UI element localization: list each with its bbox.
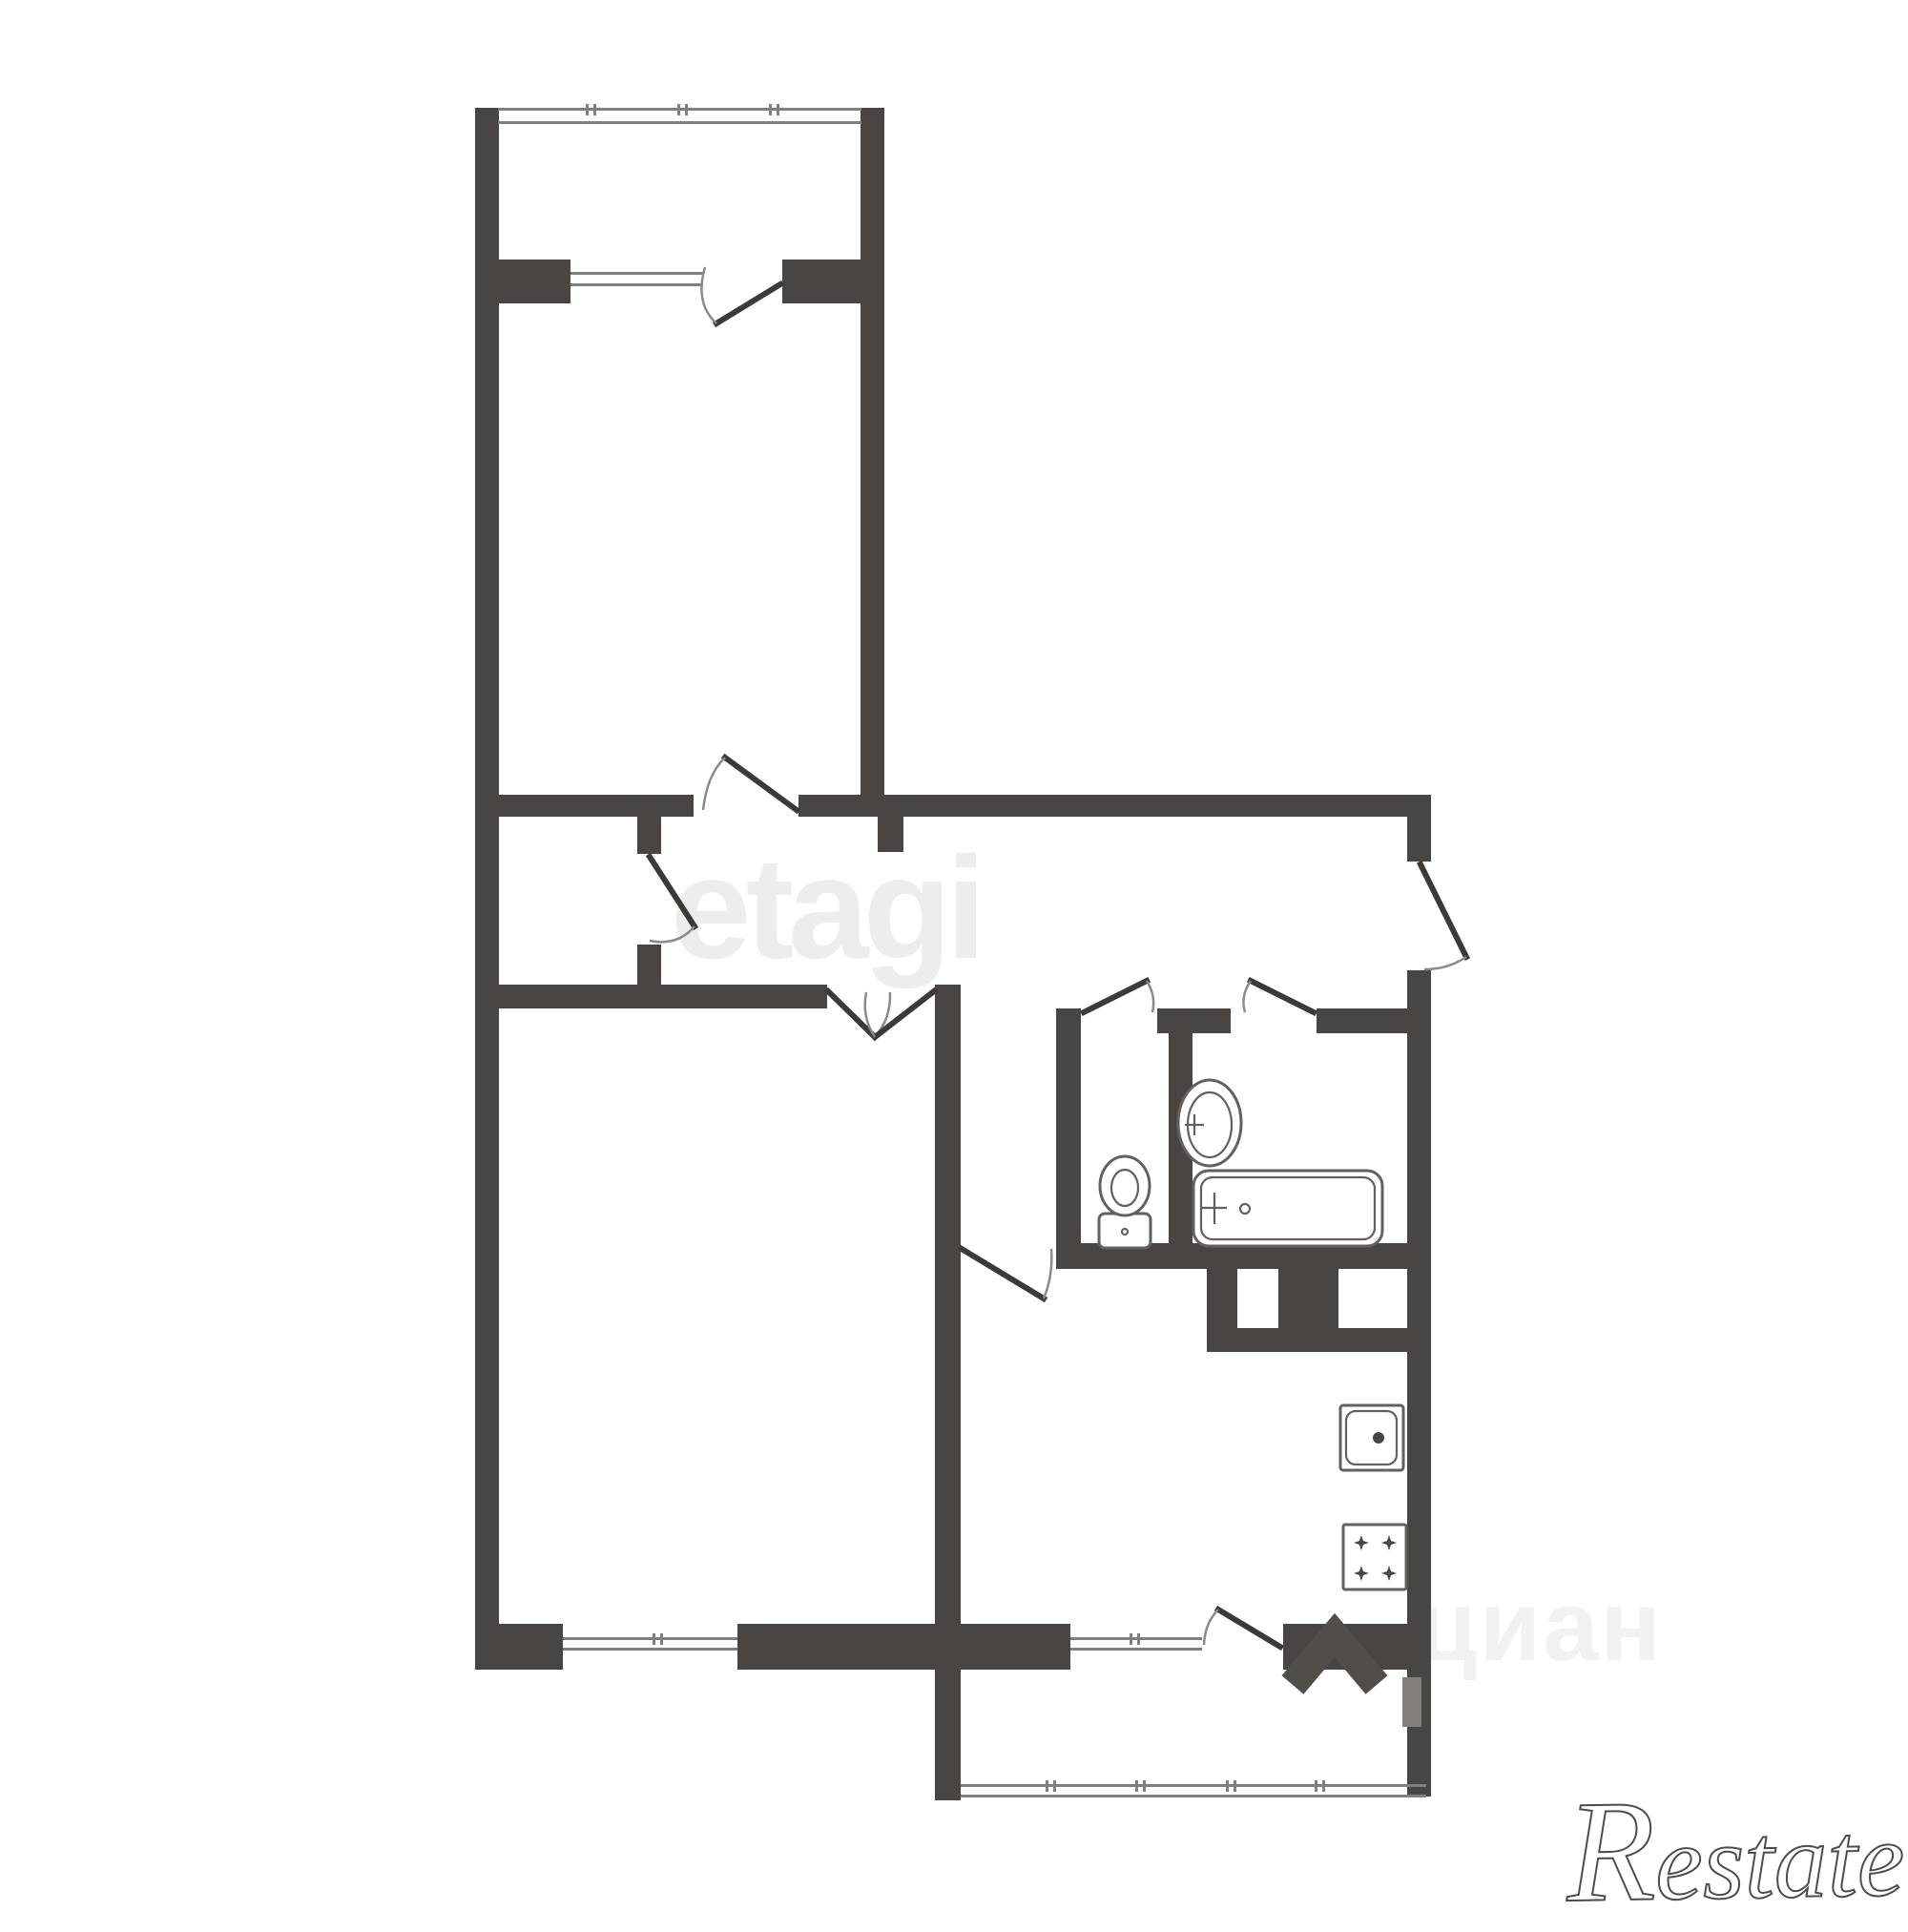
- door-swing-icon-closet: [650, 857, 695, 942]
- plan-symbols-layer: [0, 0, 1908, 1908]
- door-swing-icon-kitchen-balcony: [1204, 1610, 1280, 1647]
- floor-plan-page: { "watermarks": { "etagi": "etagi", "cia…: [0, 0, 1908, 1908]
- bathtub-icon: [1193, 1171, 1382, 1246]
- watermark-restate: Restate: [1566, 1774, 1906, 1924]
- door-swing-icon-wc: [1084, 981, 1153, 1012]
- floor-plan: etagi циан: [0, 0, 1908, 1908]
- toilet-icon: [1099, 1156, 1151, 1248]
- door-swing-icon-kitchen: [962, 1249, 1051, 1298]
- door-swing-icon-top-balcony: [701, 267, 780, 323]
- door-swing-icon-bathroom: [1243, 981, 1314, 1012]
- door-swing-icon-entrance: [1421, 864, 1466, 969]
- cian-roof-icon: [1293, 1635, 1377, 1685]
- stove-burners-icon: [1343, 1525, 1406, 1589]
- kitchen-sink-icon: [1340, 1405, 1403, 1470]
- door-swing-icon-room1: [703, 758, 797, 810]
- bathroom-sink-icon: [1178, 1080, 1241, 1166]
- door-swing-icon-room2-double: [828, 991, 934, 1037]
- cian-watermark-highlight: [1402, 1677, 1421, 1727]
- watermark-restate-rest: estate: [1654, 1800, 1905, 1923]
